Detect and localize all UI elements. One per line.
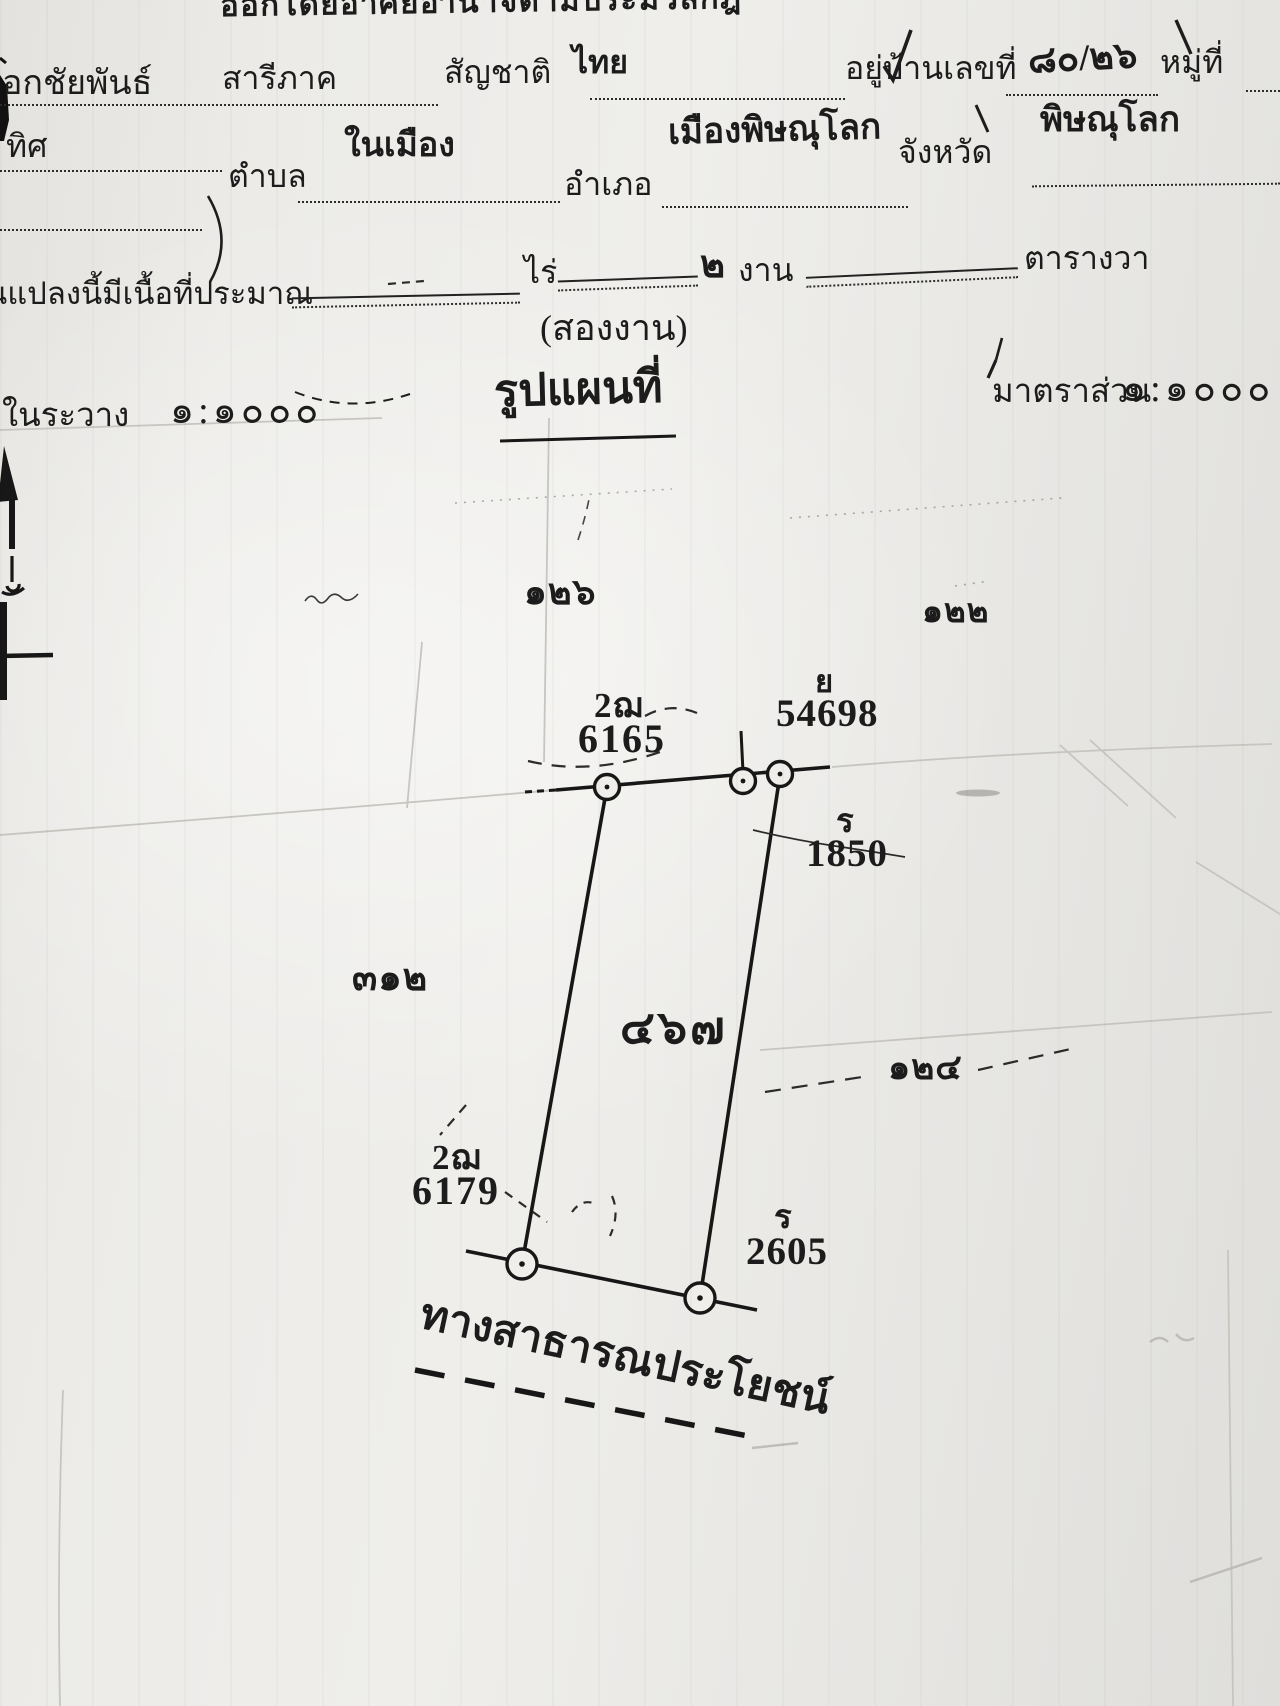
marker-y-number: 54698 [776,692,879,737]
smudge-mark [956,790,1000,797]
land-deed-scan: ออกโดยอาศัยอำนาจตามประมวลกฎ อกชัยพันธ์ ส… [0,0,1280,1706]
dotted-line [298,201,560,203]
ngan-label: งาน [738,252,793,289]
boundary-r2-number: 2605 [746,1230,828,1275]
plot-north-number: ๑๒๖ [524,572,596,613]
north-arrow-icon [0,446,24,594]
dotted-line [0,104,438,106]
rawang-label: ในระวาง [2,398,129,436]
dash-above-plot-north [578,494,590,540]
plot-northeast-number: ๑๒๒ [922,594,989,632]
tambon-value: ในเมือง [344,126,455,165]
area-words: (สองงาน) [540,308,688,349]
plot-east-number: ๑๒๔ [888,1048,963,1088]
house-number-label: อยู่บ้านเลขที่ [845,50,1017,87]
nationality-value: ไทย [572,44,628,81]
sw-code-number: 6179 [412,1168,500,1214]
edge-nick [0,58,6,63]
moo-label: หมู่ที่ [1160,44,1223,81]
stray-stroke-province [976,105,988,132]
direction-label: ทิศ [6,128,47,165]
parcel-number: ๔๖๗ [620,1002,728,1055]
dotted-line [0,229,202,231]
paper-crease-lines [0,418,1280,1706]
tambon-label: ตำบล [228,158,307,195]
map-grid-cross [0,602,53,700]
boundary-r1-number: 1850 [806,832,888,877]
dotted-line [0,170,222,172]
area-label: นแปลงนี้มีเนื้อที่ประมาณ [0,276,313,312]
faint-marks [752,1334,1262,1582]
scale-value: ๑:๑๐๐๐ [1122,368,1274,412]
map-title: รูปแผนที่ [493,362,663,418]
amphoe-label: อำเภอ [564,166,652,203]
province-value: พิษณุโลก [1040,100,1180,140]
amphoe-value: เมืองพิษณุโลก [668,107,882,153]
dotted-line [590,98,845,100]
pen-scribble [305,594,358,603]
dotted-line [662,206,908,208]
rawang-scale: ๑:๑๐๐๐ [170,390,322,434]
rai-label: ไร่ [524,254,557,291]
nationality-label: สัญชาติ [444,54,551,91]
plot-west-number: ๓๑๒ [352,958,428,1001]
owner-name: อกชัยพันธ์ [2,64,152,103]
dotted-line [1246,90,1280,92]
province-label: จังหวัด [898,134,992,171]
wa-label: ตารางวา [1024,240,1149,277]
house-number-value: ๘๐/๒๖ [1027,35,1138,83]
dotted-line [1006,94,1158,96]
owner-surname: สารีภาค [222,60,337,97]
ngan-value: ๒ [700,244,725,288]
top-code-number: 6165 [578,716,666,762]
curly-paren-stroke [208,196,222,282]
